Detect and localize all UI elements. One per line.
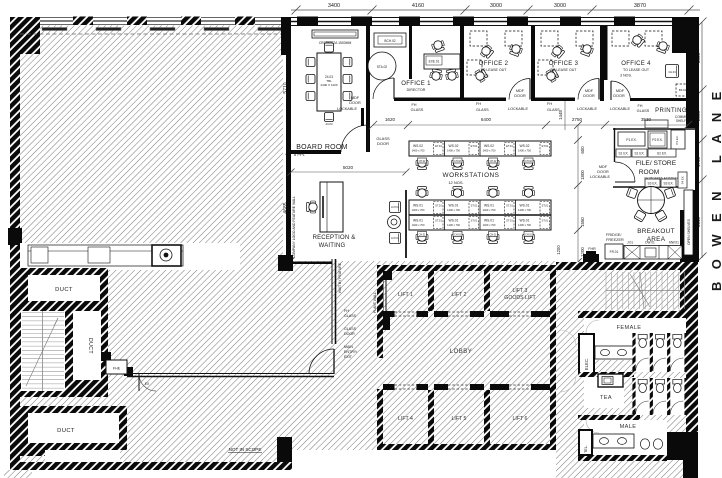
svg-text:FH: FH: [344, 309, 349, 313]
svg-text:LOCKABLE: LOCKABLE: [590, 175, 611, 179]
svg-text:CH.01: CH.01: [419, 233, 426, 236]
svg-text:3870: 3870: [634, 3, 646, 9]
svg-text:OFFICE 2: OFFICE 2: [479, 61, 509, 67]
svg-text:1400 x 700: 1400 x 700: [483, 223, 496, 227]
svg-text:LIFT 2: LIFT 2: [452, 292, 467, 298]
svg-text:CH.02: CH.02: [454, 160, 461, 163]
svg-text:P1 EX.: P1 EX.: [626, 138, 637, 142]
svg-text:WS.02: WS.02: [449, 144, 459, 148]
svg-text:DOOR: DOOR: [377, 141, 389, 146]
svg-text:1800: 1800: [580, 170, 585, 180]
svg-text:24.03: 24.03: [326, 40, 333, 44]
svg-text:FREEZER: FREEZER: [606, 238, 624, 242]
svg-text:LCH.01: LCH.01: [391, 237, 400, 240]
svg-text:FR.01: FR.01: [610, 250, 619, 254]
svg-text:ST.01: ST.01: [542, 219, 549, 223]
svg-text:EX: EX: [145, 382, 150, 386]
svg-text:MDF: MDF: [616, 89, 625, 93]
svg-text:S2 EX.: S2 EX.: [657, 152, 667, 156]
svg-text:1620: 1620: [385, 117, 396, 122]
svg-text:ST.01: ST.01: [435, 204, 442, 208]
svg-text:3000: 3000: [554, 3, 566, 9]
svg-text:1400 x 700: 1400 x 700: [483, 208, 496, 212]
svg-text:LIFT 1: LIFT 1: [398, 292, 413, 298]
svg-text:GLASS: GLASS: [637, 109, 650, 113]
svg-text:DOOR: DOOR: [613, 94, 625, 98]
svg-text:WS.01: WS.01: [520, 204, 530, 208]
svg-text:J.01: J.01: [627, 241, 633, 245]
svg-text:FH: FH: [476, 102, 481, 106]
svg-text:ET.01: ET.01: [471, 144, 478, 148]
svg-text:ST.01: ST.01: [542, 204, 549, 208]
svg-text:DUCT: DUCT: [87, 338, 93, 354]
svg-text:WAIT BY FEATURE: WAIT BY FEATURE: [338, 262, 342, 293]
svg-text:GLASS: GLASS: [411, 108, 424, 112]
svg-text:2750: 2750: [572, 117, 583, 122]
svg-text:3530: 3530: [641, 117, 652, 122]
svg-text:GLASS: GLASS: [344, 314, 357, 318]
svg-text:LIFT 4: LIFT 4: [398, 416, 413, 422]
svg-text:LOCKABLE: LOCKABLE: [610, 107, 631, 111]
svg-text:LIFT 3: LIFT 3: [513, 288, 528, 294]
svg-text:DOOR: DOOR: [583, 94, 595, 98]
svg-text:TEL.: TEL.: [584, 445, 588, 453]
svg-text:FH: FH: [547, 102, 552, 106]
svg-text:EXIT: EXIT: [344, 355, 353, 359]
svg-text:LOCKABLE: LOCKABLE: [508, 107, 529, 111]
svg-text:TEA: TEA: [600, 395, 612, 401]
svg-text:BREAKOUT: BREAKOUT: [637, 228, 675, 235]
svg-text:600: 600: [580, 146, 585, 154]
svg-text:S4 EX.: S4 EX.: [681, 175, 685, 184]
svg-text:NOT IN SCOPE: NOT IN SCOPE: [229, 447, 262, 452]
svg-text:PLANT WALL: PLANT WALL: [373, 292, 377, 313]
svg-text:ELEC.: ELEC.: [584, 358, 589, 370]
svg-text:12 NOS.: 12 NOS.: [448, 180, 463, 185]
svg-text:MALE: MALE: [620, 424, 637, 430]
svg-text:1400 x 700: 1400 x 700: [518, 149, 531, 153]
svg-text:B O W E N L A N E: B O W E N L A N E: [709, 87, 722, 291]
svg-text:1200: 1200: [580, 247, 585, 257]
svg-text:ET.01: ET.01: [542, 144, 549, 148]
svg-text:WS.02: WS.02: [413, 144, 423, 148]
svg-text:1445: 1445: [558, 110, 563, 120]
svg-text:DUCT: DUCT: [55, 287, 73, 293]
svg-text:ST.01: ST.01: [506, 219, 513, 223]
svg-text:S3 EX.: S3 EX.: [664, 182, 674, 186]
svg-text:FRIDGE/: FRIDGE/: [606, 233, 622, 237]
svg-text:CH.01: CH.01: [490, 233, 497, 236]
svg-text:CH.01: CH.01: [454, 233, 461, 236]
svg-text:WS.01: WS.01: [520, 219, 530, 223]
svg-text:CH.02: CH.02: [525, 160, 532, 163]
svg-text:EXE.01: EXE.01: [429, 60, 440, 64]
svg-text:MAIN: MAIN: [344, 345, 353, 349]
svg-text:SHELF: SHELF: [676, 119, 686, 123]
svg-text:ET.01: ET.01: [435, 144, 442, 148]
svg-text:STA.02: STA.02: [377, 65, 388, 69]
svg-text:1400 x 700: 1400 x 700: [518, 223, 531, 227]
svg-text:DW.01: DW.01: [645, 241, 655, 245]
svg-text:DOOR: DOOR: [514, 94, 526, 98]
svg-text:ST.01: ST.01: [471, 204, 478, 208]
svg-text:S3 EX.: S3 EX.: [648, 182, 658, 186]
svg-text:OFFICE 4: OFFICE 4: [621, 61, 651, 67]
svg-text:FEMALE: FEMALE: [617, 325, 642, 331]
svg-text:PRINTING: PRINTING: [655, 108, 687, 114]
svg-text:FHR: FHR: [588, 247, 596, 251]
svg-text:1400 x 700: 1400 x 700: [412, 223, 425, 227]
svg-text:DOOR: DOOR: [349, 101, 361, 105]
svg-text:S1 EX.: S1 EX.: [619, 152, 629, 156]
svg-text:1400 x 700: 1400 x 700: [518, 208, 531, 212]
svg-text:LOCKABLE: LOCKABLE: [577, 107, 598, 111]
svg-text:MDF: MDF: [351, 96, 360, 100]
svg-text:1200: 1200: [556, 245, 561, 255]
svg-text:ET.01: ET.01: [506, 144, 513, 148]
svg-text:8 PPL: 8 PPL: [294, 152, 306, 157]
svg-text:3000: 3000: [490, 3, 502, 9]
svg-text:FHE: FHE: [113, 367, 121, 371]
svg-text:1400 x 700: 1400 x 700: [412, 208, 425, 212]
svg-text:4160: 4160: [412, 3, 424, 9]
svg-text:WS.01: WS.01: [484, 219, 494, 223]
svg-text:FH: FH: [637, 104, 642, 108]
svg-text:ST.01: ST.01: [435, 219, 442, 223]
svg-text:LIFT 6: LIFT 6: [513, 416, 528, 422]
svg-text:DIRECTOR: DIRECTOR: [407, 88, 426, 92]
svg-text:1400 x 700: 1400 x 700: [447, 149, 460, 153]
svg-text:6400: 6400: [481, 117, 492, 122]
svg-text:LIFT 5: LIFT 5: [452, 416, 467, 422]
svg-text:OPEN SHELVES: OPEN SHELVES: [687, 218, 691, 245]
svg-text:24.03: 24.03: [326, 122, 333, 126]
svg-text:5020: 5020: [343, 165, 354, 170]
svg-text:LOCKABLE: LOCKABLE: [337, 107, 358, 111]
svg-text:ENTRY/: ENTRY/: [344, 350, 357, 354]
svg-text:CH.03: CH.03: [668, 70, 676, 74]
svg-text:COMPANY LOGO AND FEATURE WALL: COMPANY LOGO AND FEATURE WALL: [292, 196, 296, 258]
svg-text:WS.02: WS.02: [520, 144, 530, 148]
svg-text:P2 EX.: P2 EX.: [652, 138, 663, 142]
svg-text:1400 x 700: 1400 x 700: [447, 208, 460, 212]
svg-text:S1 EX.: S1 EX.: [635, 152, 645, 156]
svg-text:1400 x 700: 1400 x 700: [483, 149, 496, 153]
svg-text:WS.01: WS.01: [413, 219, 423, 223]
svg-text:WAITING: WAITING: [319, 243, 346, 249]
svg-text:WS.01: WS.01: [484, 204, 494, 208]
svg-text:CH.02: CH.02: [419, 160, 426, 163]
svg-text:TO LEASE OUT: TO LEASE OUT: [623, 68, 650, 72]
svg-text:CH.02: CH.02: [490, 160, 497, 163]
svg-text:BOARD ROOM: BOARD ROOM: [296, 144, 348, 151]
svg-text:BF.01: BF.01: [679, 88, 687, 92]
svg-text:ROOM: ROOM: [639, 169, 660, 176]
svg-text:FH: FH: [411, 103, 416, 107]
svg-text:1400 x 700: 1400 x 700: [412, 149, 425, 153]
svg-text:LCH.01: LCH.01: [391, 206, 400, 209]
svg-text:BCH.02: BCH.02: [384, 39, 395, 43]
svg-text:3400: 3400: [328, 3, 340, 9]
svg-text:MDF: MDF: [599, 165, 608, 169]
svg-text:CH.01: CH.01: [525, 233, 532, 236]
svg-text:WS.01: WS.01: [413, 204, 423, 208]
svg-text:LOBBY: LOBBY: [450, 349, 473, 355]
svg-text:WORKSTATIONS: WORKSTATIONS: [443, 172, 500, 179]
svg-text:3 NOS.: 3 NOS.: [620, 74, 632, 78]
svg-text:P3 EX.: P3 EX.: [675, 135, 679, 145]
svg-text:GOODS LIFT: GOODS LIFT: [504, 295, 536, 301]
svg-text:FILE/ STORE: FILE/ STORE: [636, 160, 677, 167]
svg-text:TO LEASE OUT: TO LEASE OUT: [550, 68, 577, 72]
svg-text:WS.01: WS.01: [449, 219, 459, 223]
svg-text:MDF: MDF: [516, 89, 525, 93]
svg-text:2400 X 1200: 2400 X 1200: [320, 83, 337, 87]
svg-text:WS.01: WS.01: [449, 204, 459, 208]
svg-text:CREDENZA 1500MM: CREDENZA 1500MM: [319, 41, 352, 45]
svg-text:DOOR: DOOR: [344, 332, 355, 336]
svg-text:OFFICE 1: OFFICE 1: [401, 81, 431, 87]
svg-text:ST.01: ST.01: [506, 204, 513, 208]
svg-text:1550: 1550: [580, 217, 585, 227]
svg-text:MDF: MDF: [585, 89, 594, 93]
svg-text:WS.02: WS.02: [484, 144, 494, 148]
svg-text:RECEPTION &: RECEPTION &: [313, 235, 356, 241]
svg-text:MW.01: MW.01: [669, 241, 679, 245]
svg-text:ST.01: ST.01: [471, 219, 478, 223]
svg-text:DOOR: DOOR: [597, 170, 609, 174]
svg-text:GLASS: GLASS: [344, 327, 357, 331]
svg-text:1400 x 700: 1400 x 700: [447, 223, 460, 227]
svg-text:GLASS: GLASS: [476, 108, 489, 112]
svg-text:DUCT: DUCT: [57, 428, 75, 434]
